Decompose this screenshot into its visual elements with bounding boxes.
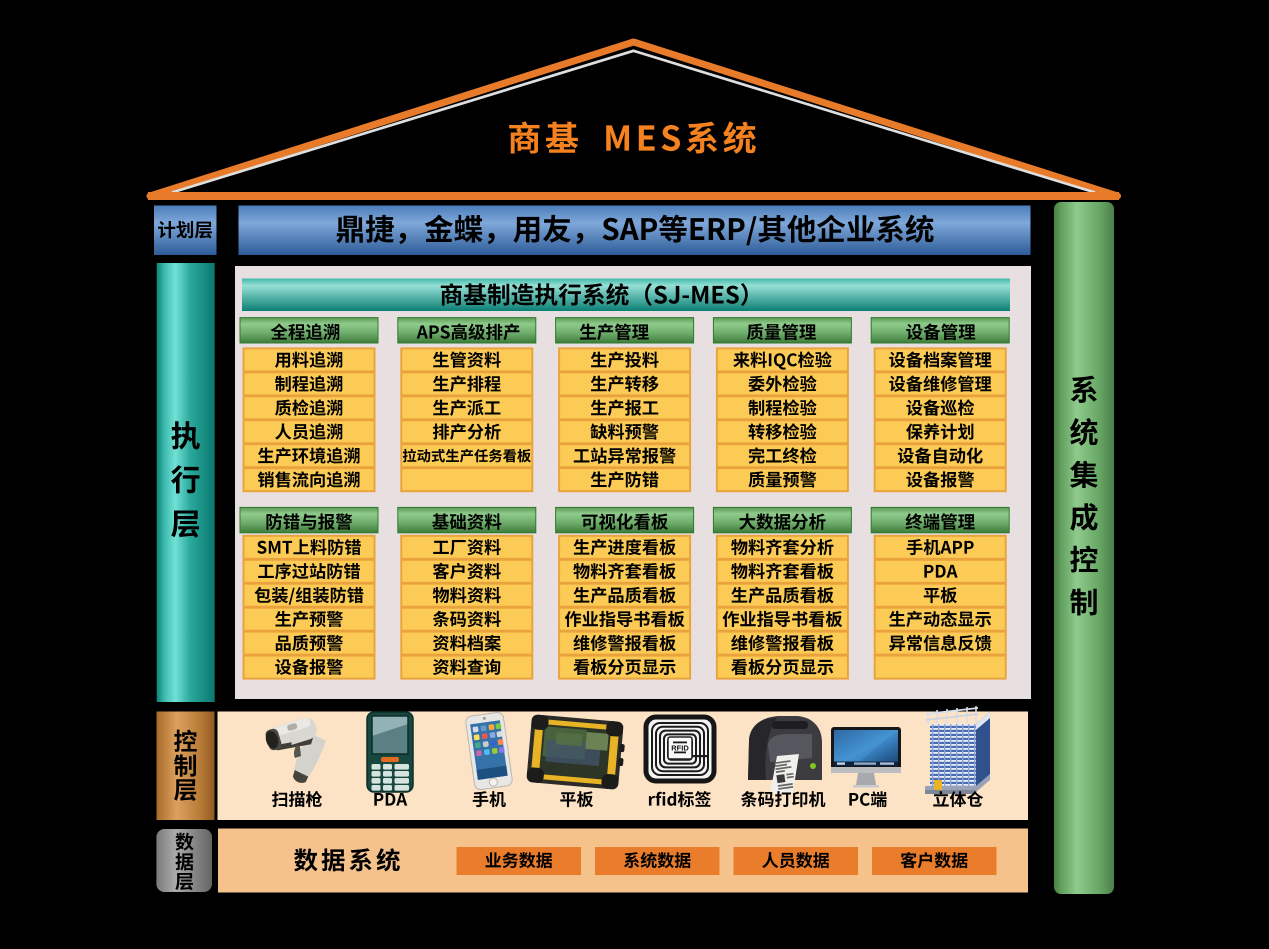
- svg-text:RFID: RFID: [671, 744, 689, 753]
